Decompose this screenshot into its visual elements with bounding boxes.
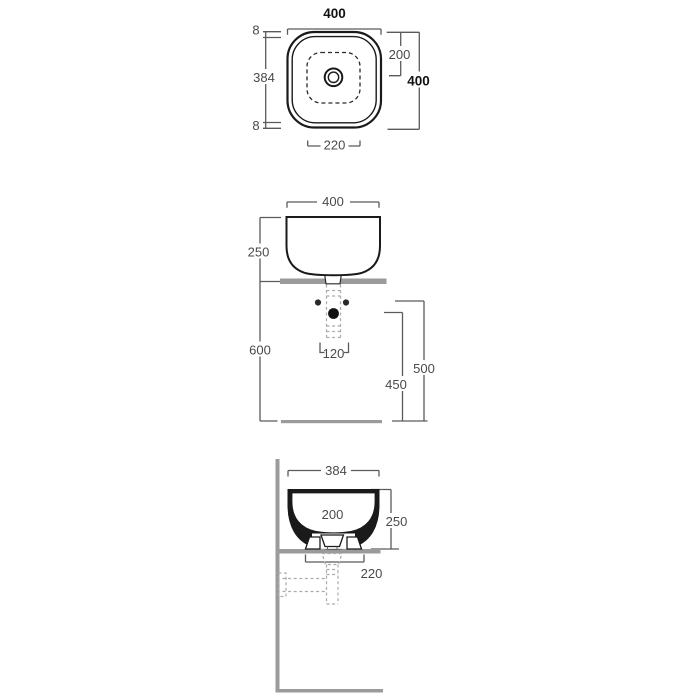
dim-label-counter-height: 600 bbox=[249, 343, 271, 358]
dim-label-side-basin-height: 250 bbox=[386, 514, 408, 529]
side-view: 384 200 250 220 bbox=[276, 459, 412, 693]
top-view: 400 8 384 8 200 400 220 bbox=[250, 6, 434, 153]
dim-label-supply-height: 500 bbox=[413, 361, 435, 376]
waste-pipe-dashed bbox=[279, 554, 343, 605]
drain-boss bbox=[321, 535, 344, 547]
dim-label-top-overall-depth: 400 bbox=[407, 74, 430, 89]
dim-label-basin-height: 250 bbox=[248, 245, 270, 260]
dim-label-rim-offset-bottom: 8 bbox=[252, 118, 259, 133]
technical-drawing: 400 8 384 8 200 400 220 bbox=[0, 0, 700, 700]
counter-surface-side bbox=[276, 549, 381, 554]
fixing-bolt-right bbox=[343, 299, 349, 305]
dim-label-hole-spacing: 120 bbox=[323, 346, 345, 361]
dim-label-inner-bottom-width: 220 bbox=[324, 138, 346, 153]
dim-label-front-overall-width: 400 bbox=[322, 194, 344, 209]
dim-label-side-length: 384 bbox=[253, 70, 275, 85]
drawing-canvas: 400 8 384 8 200 400 220 bbox=[0, 0, 700, 700]
drain-outlet-dot bbox=[328, 308, 339, 319]
wall-line bbox=[276, 459, 280, 693]
basin-rim-outer bbox=[288, 32, 382, 128]
dim-label-drain-center-from-top: 200 bbox=[389, 47, 411, 62]
dim-label-inner-depth: 200 bbox=[322, 507, 344, 522]
dim-label-rim-offset-top: 8 bbox=[252, 23, 259, 38]
floor-line bbox=[281, 420, 382, 423]
dim-label-drain-outlet-height: 450 bbox=[385, 377, 407, 392]
floor-line-side bbox=[276, 689, 384, 693]
front-view: 400 250 600 120 450 500 bbox=[245, 194, 439, 423]
fixing-bolt-left bbox=[315, 299, 321, 305]
basin-outline-front bbox=[287, 217, 381, 275]
dim-label-base-width: 220 bbox=[361, 566, 383, 581]
dim-label-top-overall-width: 400 bbox=[323, 6, 346, 21]
dim-label-side-overall-width: 384 bbox=[325, 463, 347, 478]
